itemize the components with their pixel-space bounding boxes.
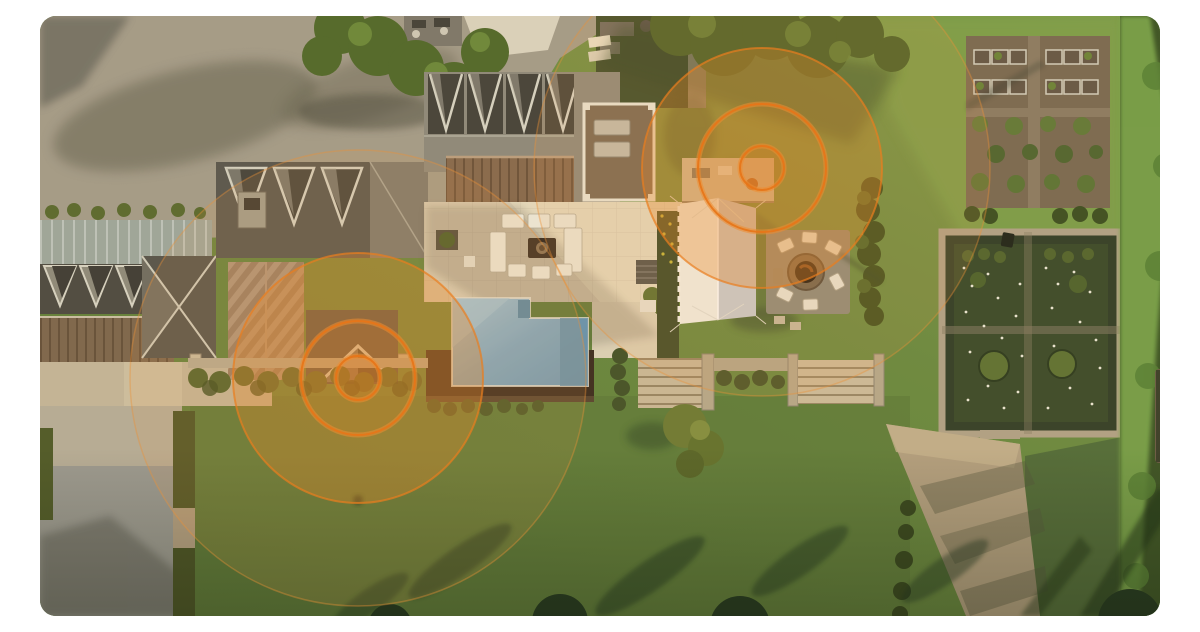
- sensor-1-marker[interactable]: [130, 150, 586, 606]
- estate-aerial-photo: [40, 16, 1160, 616]
